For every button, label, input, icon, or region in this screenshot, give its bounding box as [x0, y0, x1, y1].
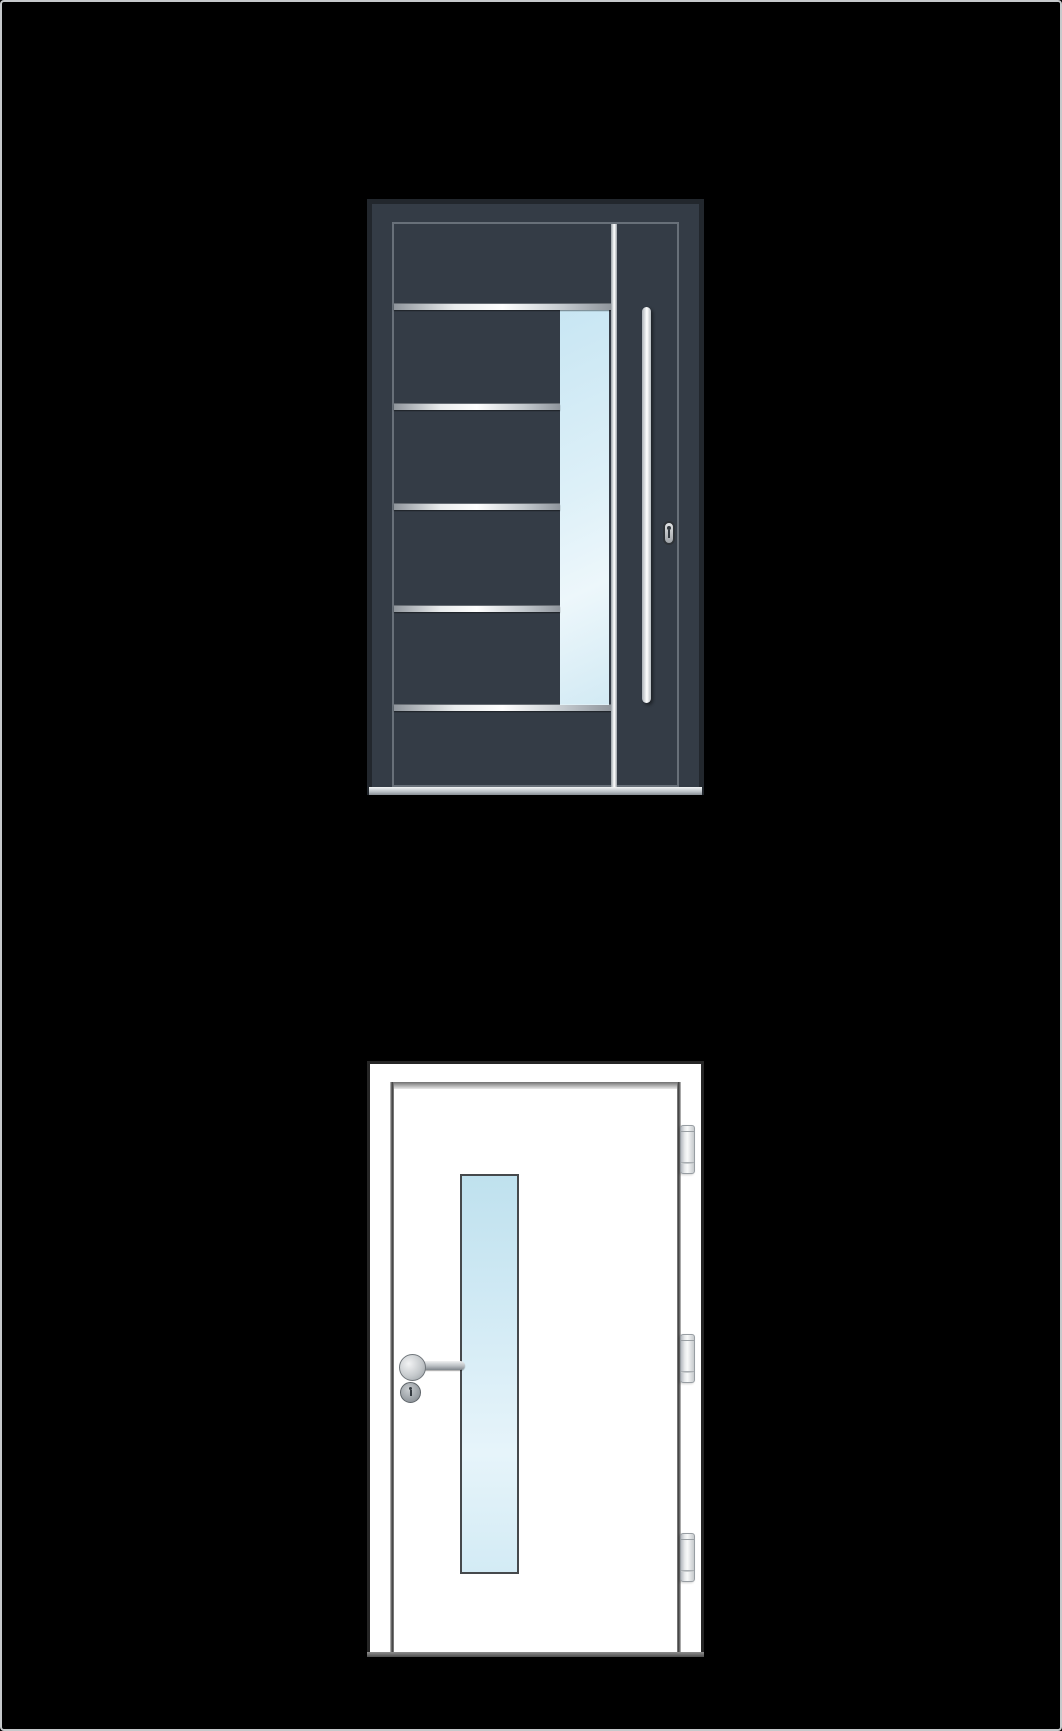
interior-door-threshold — [367, 1652, 704, 1657]
entrance-door-stripe-5 — [394, 705, 611, 711]
entrance-door-thumbnail[interactable] — [367, 199, 704, 795]
interior-door-hinge-middle — [680, 1334, 695, 1383]
entrance-door-glass-stripe — [560, 310, 609, 705]
interior-door-glass-panel — [460, 1174, 519, 1574]
interior-door-lock-escutcheon-icon — [400, 1382, 421, 1403]
interior-door-thumbnail[interactable] — [367, 1061, 704, 1657]
entrance-door-lock-cylinder-icon — [663, 521, 675, 545]
entrance-door-divider-bar — [611, 224, 617, 787]
entrance-door-stripe-1 — [394, 304, 611, 310]
entrance-door-threshold — [369, 787, 702, 795]
interior-door-handle-rosette — [399, 1354, 426, 1381]
entrance-door-stripe-4 — [394, 606, 560, 612]
entrance-door-bar-handle — [642, 307, 651, 703]
interior-door-hinge-bottom — [680, 1533, 695, 1582]
entrance-door-stripe-3 — [394, 504, 560, 510]
interior-door-leaf-edge-left — [390, 1082, 394, 1654]
interior-door-frame-shadow — [393, 1082, 678, 1089]
entrance-door-stripe-2 — [394, 404, 560, 410]
interior-door-hinge-top — [680, 1125, 695, 1174]
catalog-canvas — [0, 0, 1062, 1731]
